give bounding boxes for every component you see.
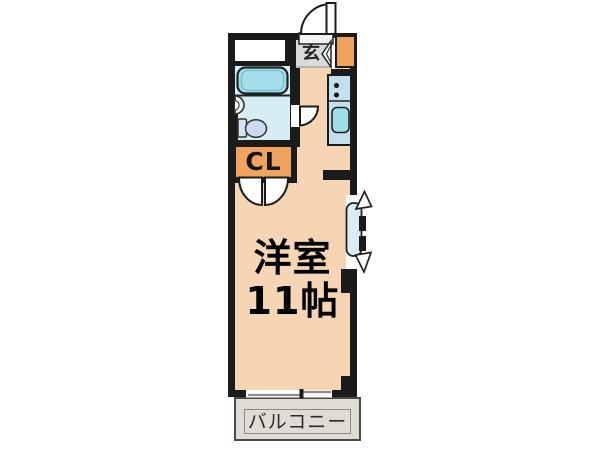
bath-door-gap bbox=[291, 105, 300, 127]
shoe-cabinet bbox=[335, 35, 356, 68]
pillar-bottom-right bbox=[341, 376, 357, 397]
balcony-inner-rail: バルコニー bbox=[244, 409, 351, 434]
balcony-label: バルコニー bbox=[245, 410, 350, 435]
closet-label: CL bbox=[236, 147, 291, 177]
closet-interior: CL bbox=[236, 147, 291, 177]
pillar-left bbox=[228, 112, 238, 140]
kitchen-counter bbox=[327, 74, 352, 146]
genkan-label: 玄 bbox=[296, 41, 326, 67]
bathroom-floor bbox=[235, 66, 290, 140]
room-label: 洋室 11帖 bbox=[230, 237, 355, 322]
partition-stub bbox=[323, 170, 357, 180]
balcony: バルコニー bbox=[234, 397, 361, 441]
room-name: 洋室 bbox=[230, 237, 355, 280]
room-size: 11帖 bbox=[230, 280, 355, 323]
floorplan-canvas: CL バルコニー 洋室 11帖 玄 bbox=[0, 0, 600, 450]
laundry-space bbox=[235, 40, 285, 61]
